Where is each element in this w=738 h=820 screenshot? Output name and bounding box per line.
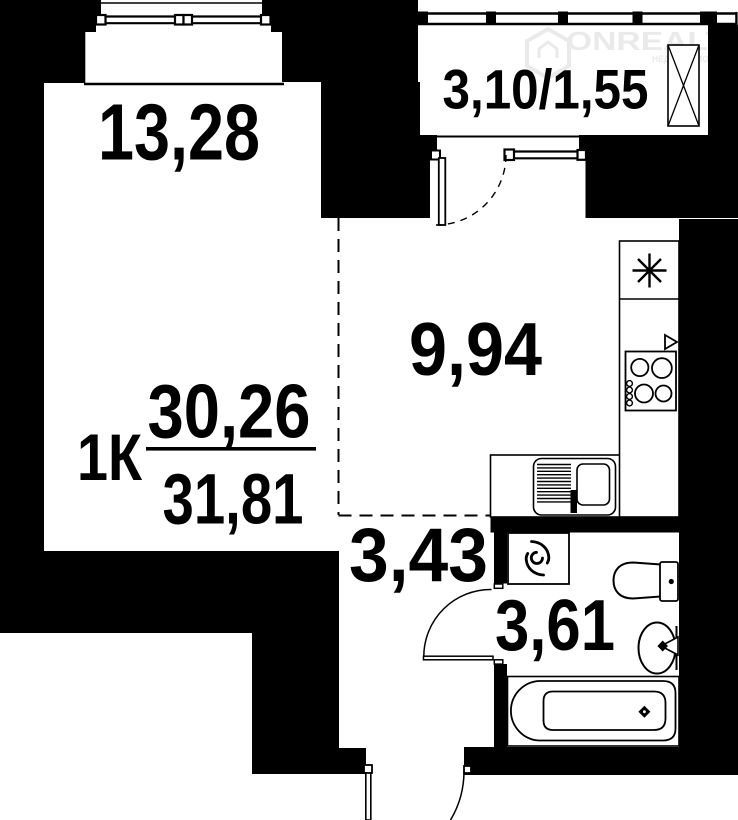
svg-text:ONREALT: ONREALT [566, 26, 726, 56]
svg-text:3,43: 3,43 [349, 513, 488, 598]
svg-text:13,28: 13,28 [98, 88, 260, 177]
svg-text:3,61: 3,61 [495, 586, 615, 666]
svg-text:9,94: 9,94 [409, 307, 542, 391]
svg-text:31,81: 31,81 [163, 461, 304, 540]
svg-text:1К: 1К [77, 420, 143, 494]
svg-text:30,26: 30,26 [148, 370, 311, 455]
svg-text:3,10/1,55: 3,10/1,55 [443, 58, 649, 121]
